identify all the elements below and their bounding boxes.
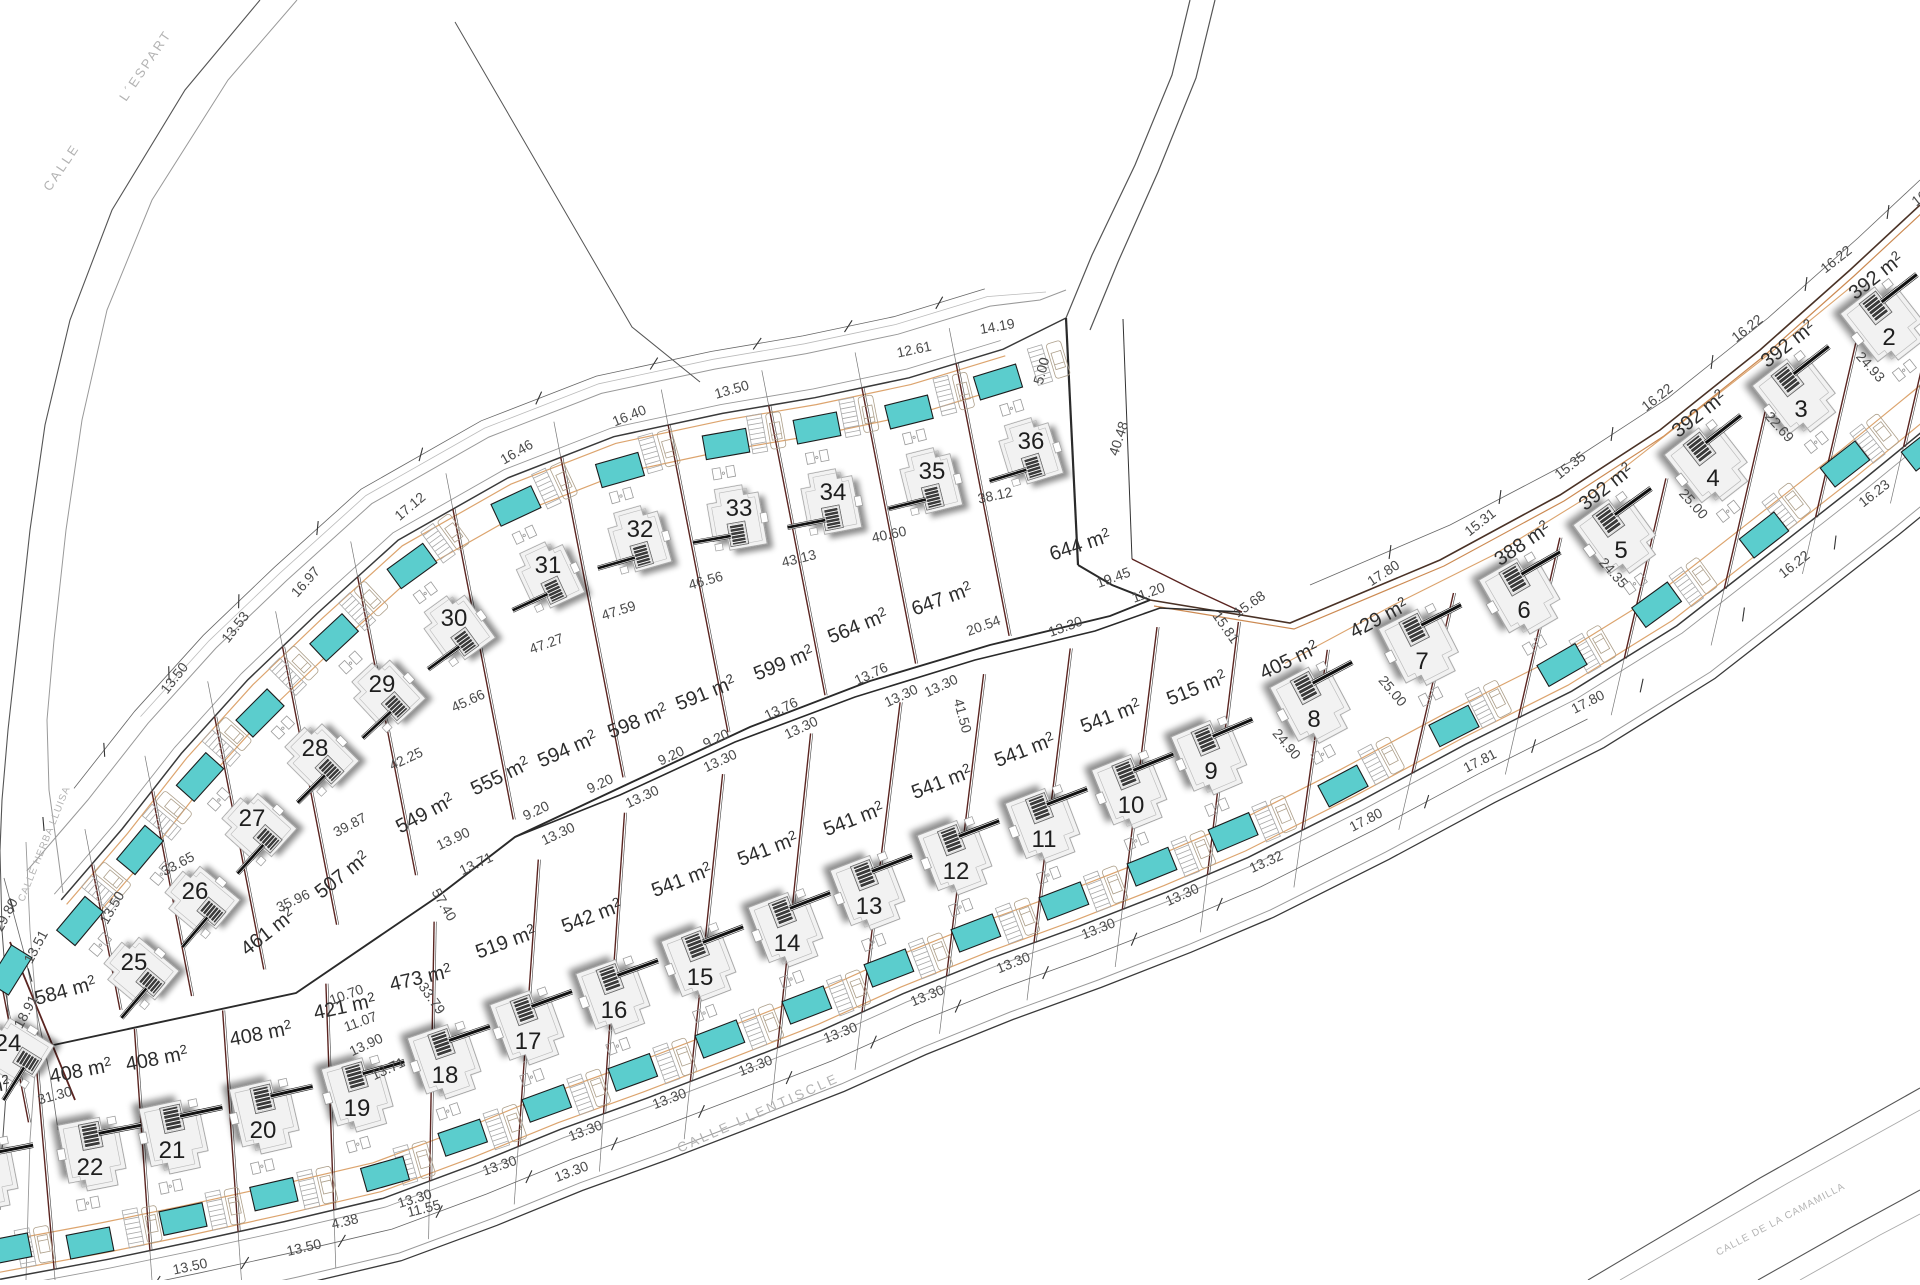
svg-text:11: 11 xyxy=(1032,826,1057,853)
svg-text:13: 13 xyxy=(856,893,883,920)
svg-text:14: 14 xyxy=(774,930,801,957)
svg-text:9: 9 xyxy=(1204,758,1217,785)
svg-text:34: 34 xyxy=(820,479,847,506)
svg-text:16: 16 xyxy=(601,997,628,1024)
svg-text:3: 3 xyxy=(1794,396,1807,423)
svg-text:21: 21 xyxy=(159,1137,186,1164)
svg-text:35: 35 xyxy=(919,458,946,485)
svg-text:33: 33 xyxy=(726,495,753,522)
svg-text:24: 24 xyxy=(0,1030,21,1057)
svg-text:10: 10 xyxy=(1118,792,1145,819)
svg-text:29: 29 xyxy=(369,671,396,698)
svg-text:32: 32 xyxy=(627,516,654,543)
svg-text:26: 26 xyxy=(182,878,209,905)
svg-text:31: 31 xyxy=(535,552,562,579)
svg-text:18: 18 xyxy=(432,1062,459,1089)
svg-text:19: 19 xyxy=(344,1095,371,1122)
svg-text:2: 2 xyxy=(1882,324,1895,351)
svg-text:30: 30 xyxy=(441,605,468,632)
svg-text:4: 4 xyxy=(1706,465,1719,492)
svg-text:15: 15 xyxy=(687,964,714,991)
svg-text:6: 6 xyxy=(1517,597,1530,624)
svg-text:36: 36 xyxy=(1018,428,1045,455)
svg-text:5: 5 xyxy=(1614,537,1627,564)
svg-text:7: 7 xyxy=(1415,648,1428,675)
svg-text:20: 20 xyxy=(250,1117,277,1144)
svg-text:27: 27 xyxy=(239,805,266,832)
svg-text:12: 12 xyxy=(943,858,970,885)
svg-text:17: 17 xyxy=(515,1028,542,1055)
svg-text:28: 28 xyxy=(302,735,329,762)
svg-text:8: 8 xyxy=(1307,706,1320,733)
svg-text:25: 25 xyxy=(121,949,148,976)
svg-text:22: 22 xyxy=(77,1154,104,1181)
